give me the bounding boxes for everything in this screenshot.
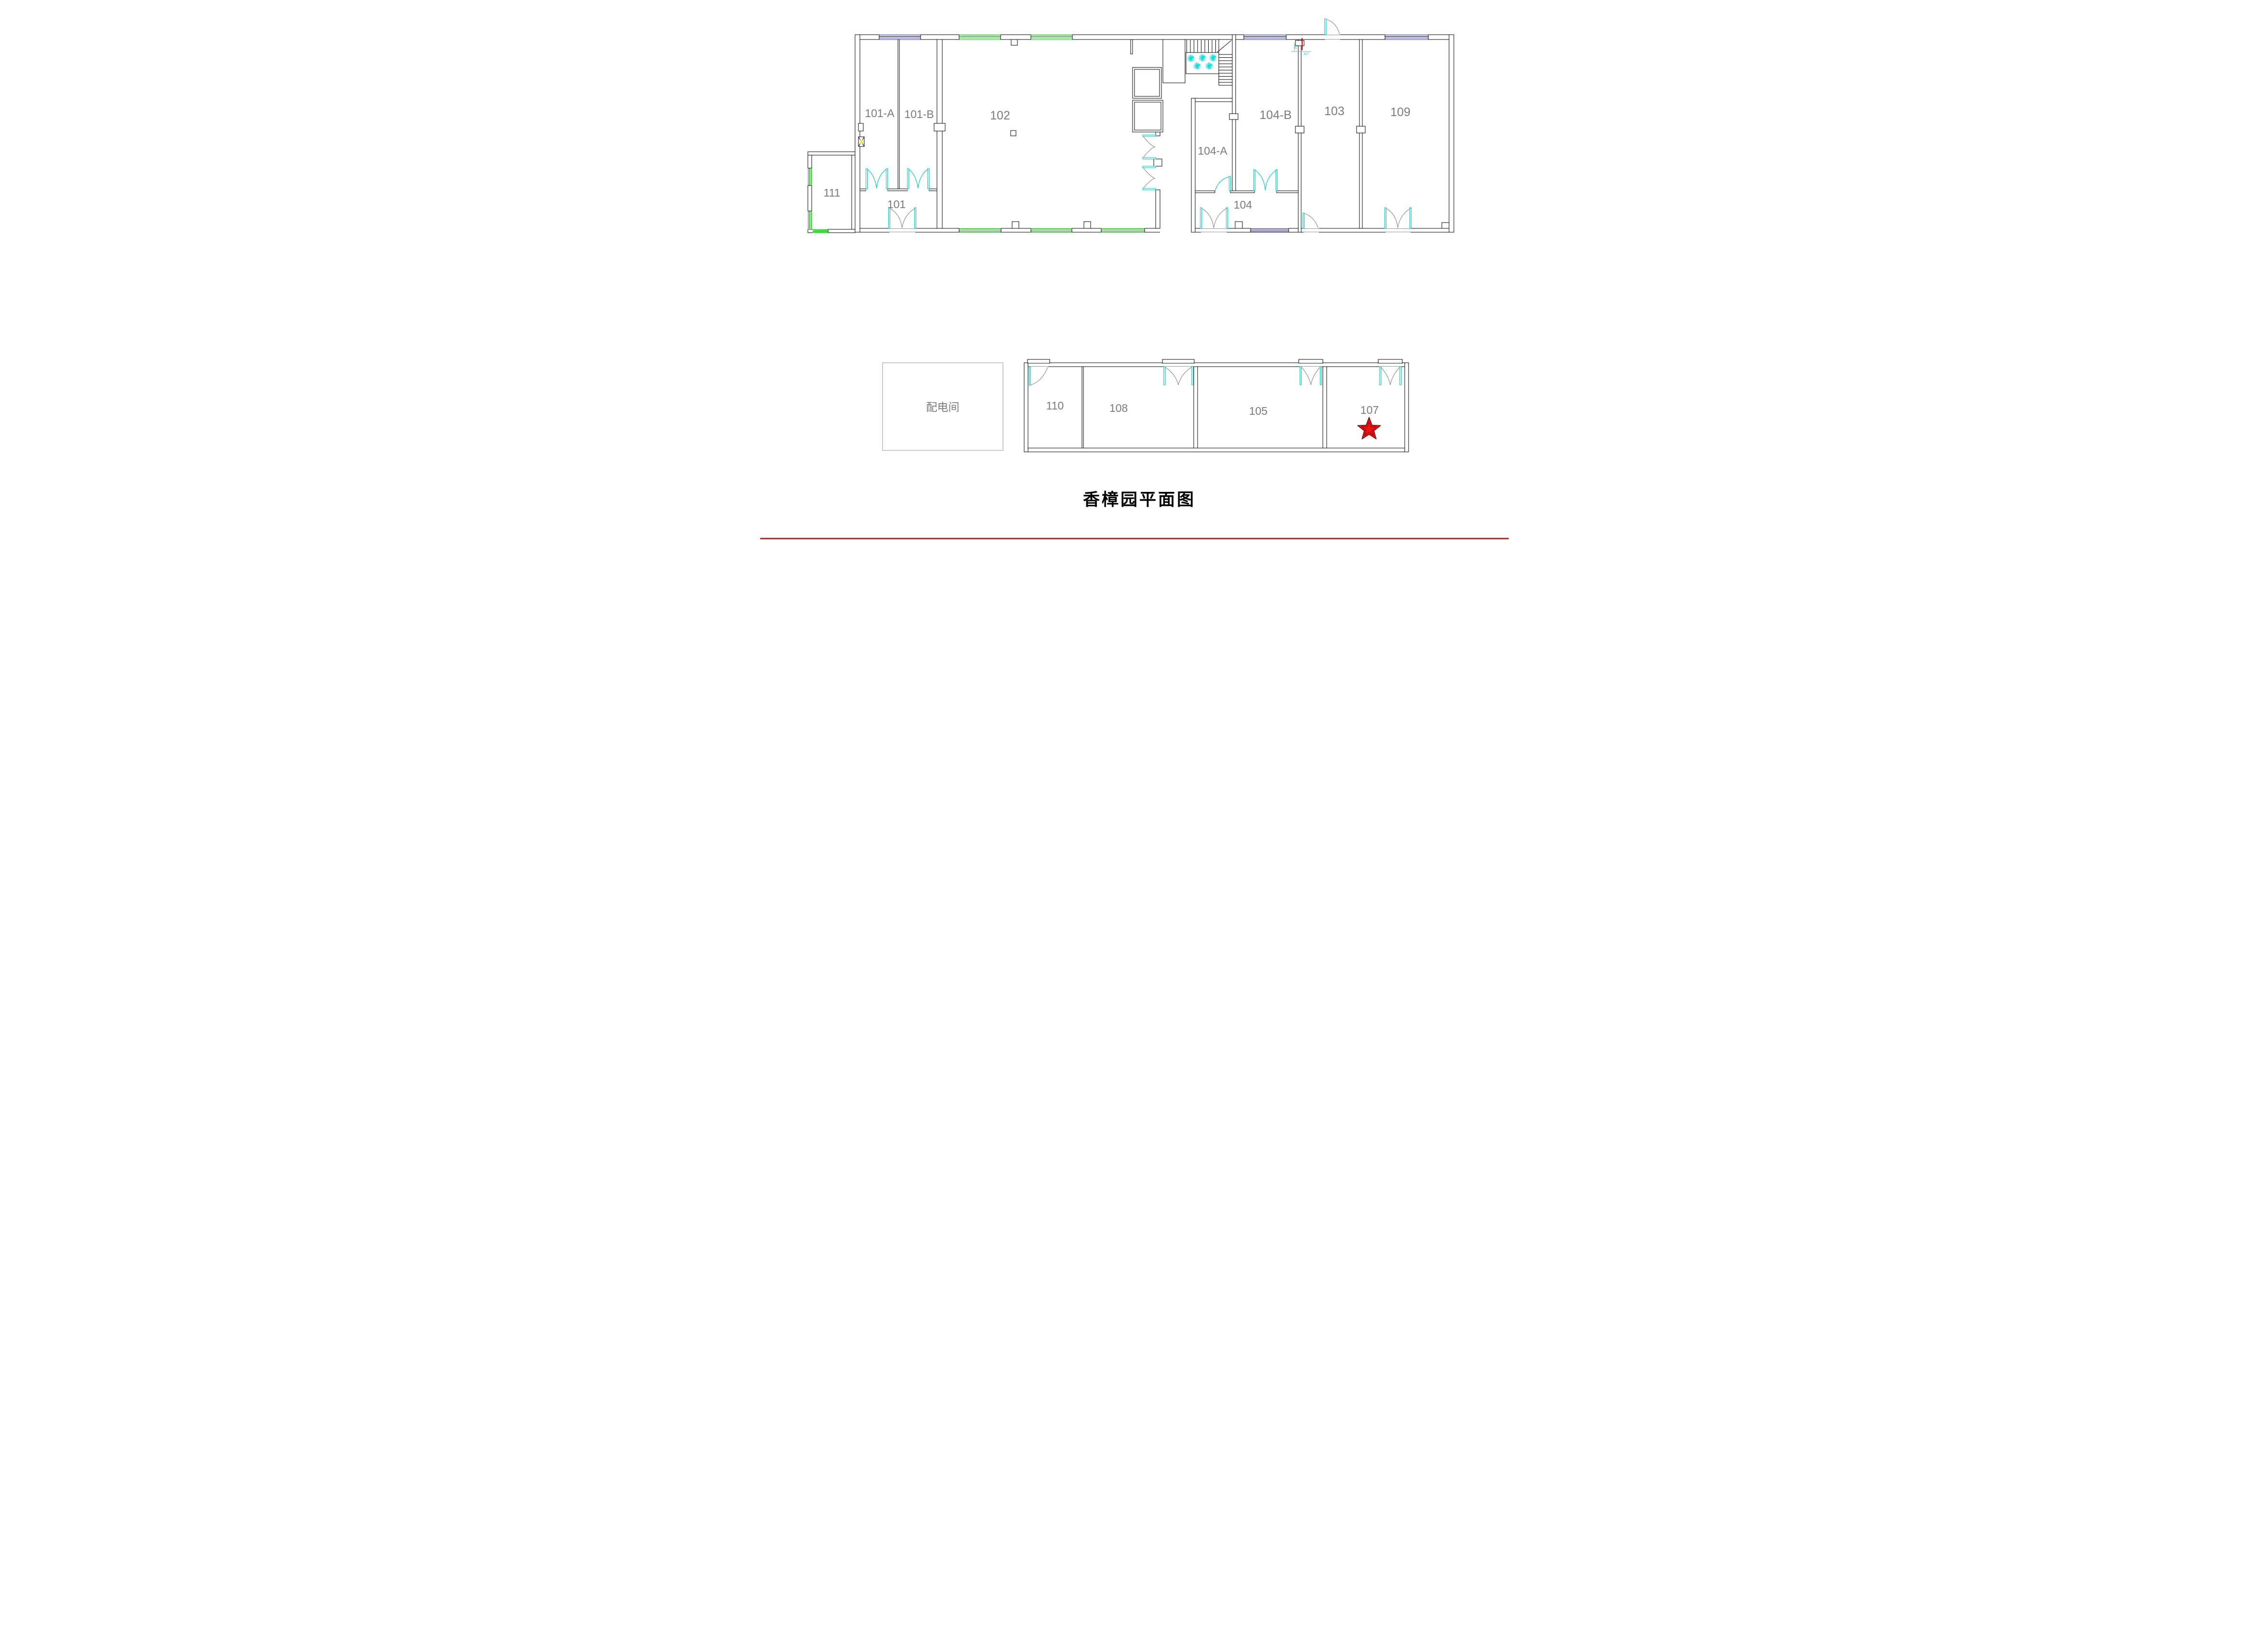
door-102-entrance-south — [1143, 166, 1156, 190]
window-green-111-left-1 — [807, 168, 812, 185]
wall-stub-102 — [1131, 40, 1133, 54]
planter-area — [1186, 53, 1219, 74]
room-label-101a: 101-A — [865, 107, 895, 119]
door-109-exterior — [1385, 208, 1411, 233]
annex-top-wall — [808, 152, 855, 155]
dim-label-h: 427 — [1304, 53, 1309, 56]
door-104b — [1253, 170, 1277, 191]
floor-plan-drawing: 266 427 101-A 101-B 102 101 104-A 104-B … — [756, 0, 1512, 542]
entrance-opening — [1160, 228, 1191, 233]
wall-108-105 — [1194, 367, 1198, 448]
plant-icon — [1206, 63, 1213, 69]
wall-102-east-a — [1156, 132, 1160, 136]
room-label-108: 108 — [1109, 402, 1127, 414]
main-top-wall — [855, 35, 1454, 40]
south-right-wall — [1405, 363, 1409, 452]
column-102-center — [1011, 131, 1016, 136]
pilaster-109-corner — [1442, 223, 1449, 228]
closet-1 — [1133, 67, 1161, 98]
shaft — [1163, 40, 1185, 83]
door-107 — [1379, 363, 1401, 385]
room-label-105: 105 — [1249, 405, 1267, 417]
pilaster-vestibule — [1154, 159, 1162, 166]
window-green-102-bottom-2 — [1031, 228, 1072, 233]
wall-101-lobby-c — [929, 189, 937, 191]
south-left-wall — [1024, 363, 1028, 452]
south-top-wall — [1024, 363, 1409, 367]
pilaster-104-lobby — [1235, 222, 1242, 228]
plant-icon — [1199, 54, 1206, 61]
plant-icon — [1194, 63, 1200, 69]
closet-2 — [1133, 100, 1163, 132]
door-top-exterior — [1324, 19, 1340, 40]
bottom-red-rule — [760, 538, 1509, 540]
window-blue-109-top — [1385, 34, 1428, 40]
room-label-102: 102 — [990, 109, 1010, 122]
wall-110-108 — [1082, 367, 1083, 448]
main-left-wall — [855, 35, 860, 232]
pilaster-101b-102 — [934, 123, 945, 131]
wall-104-lobby-a — [1195, 191, 1215, 193]
door-leaf — [1324, 19, 1326, 35]
door-102-entrance-north — [1143, 135, 1156, 159]
room-label-101: 101 — [887, 198, 905, 211]
main-bottom-wall — [855, 228, 1454, 232]
wall-105-107 — [1323, 367, 1327, 448]
pilaster-103-109 — [1357, 126, 1365, 133]
stairs — [1185, 40, 1232, 85]
window-green-111-bottom — [813, 229, 828, 233]
door-104-exterior — [1200, 208, 1227, 233]
column-marker-yellow — [858, 137, 864, 146]
room-label-109: 109 — [1390, 106, 1411, 119]
pilaster-104b-103-mid — [1295, 126, 1304, 133]
door-104a — [1215, 176, 1230, 191]
south-building: 110 108 105 107 — [1024, 359, 1409, 452]
door-103-exterior — [1303, 213, 1319, 233]
wall-101-lobby-b — [887, 189, 908, 191]
window-green-102-top-2 — [1031, 34, 1072, 40]
wall-101b-102 — [937, 40, 942, 228]
pilaster-left-wall — [858, 123, 863, 131]
pilaster-102-bottom-2 — [1084, 222, 1091, 228]
page-title: 香樟园平面图 — [1082, 490, 1195, 509]
window-blue-104b-top — [1244, 34, 1286, 40]
door-105 — [1300, 363, 1321, 385]
annex-111: 111 — [807, 152, 855, 233]
room-label-104: 104 — [1233, 198, 1252, 211]
power-room: 配电间 — [883, 363, 1003, 450]
door-swing-arc — [1326, 19, 1340, 35]
wall-104a-top — [1191, 98, 1232, 102]
room-label-104a: 104-A — [1198, 145, 1227, 157]
room-label-104b: 104-B — [1259, 108, 1292, 122]
window-blue-101 — [879, 34, 921, 40]
floor-plan-page: 266 427 101-A 101-B 102 101 104-A 104-B … — [756, 0, 1512, 542]
door-108 — [1163, 363, 1193, 385]
wall-104-lobby-b — [1230, 191, 1254, 193]
stair-break-line — [1217, 40, 1231, 52]
stair-bottom-wall — [1219, 82, 1232, 85]
room-label-107: 107 — [1360, 404, 1378, 416]
room-label-power: 配电间 — [926, 401, 959, 413]
wall-104-lobby-c — [1277, 191, 1298, 193]
room-label-110: 110 — [1046, 399, 1064, 412]
wall-102-east-b — [1156, 190, 1160, 228]
room-label-101b: 101-B — [904, 108, 934, 120]
lintel-105 — [1299, 359, 1323, 363]
wall-104b-103 — [1298, 40, 1301, 232]
window-green-102-top-1 — [959, 34, 1001, 40]
door-101b — [907, 169, 929, 191]
door-101a — [866, 169, 887, 191]
window-green-102-bottom-1 — [959, 228, 1001, 233]
pilaster-102-bottom-1 — [1012, 222, 1019, 228]
lintel-107 — [1378, 359, 1402, 363]
pilaster-102-top — [1011, 40, 1017, 45]
plant-icon — [1187, 55, 1194, 62]
door-110 — [1029, 363, 1048, 385]
room-label-103: 103 — [1324, 105, 1345, 118]
main-right-wall — [1449, 35, 1454, 232]
door-101-exterior — [888, 208, 916, 233]
wall-101a-101b — [898, 40, 899, 191]
window-green-102-bottom-3 — [1101, 228, 1145, 233]
dim-label-v: 266 — [1294, 44, 1297, 49]
main-building: 266 427 101-A 101-B 102 101 104-A 104-B … — [855, 19, 1454, 233]
room-label-111: 111 — [823, 186, 840, 199]
wall-103-109 — [1359, 40, 1362, 228]
wall-104-west — [1191, 98, 1195, 232]
plant-icon — [1210, 54, 1216, 61]
pilaster-104a-104b — [1229, 114, 1238, 119]
lintel-108 — [1162, 359, 1194, 363]
wall-104a-104b — [1232, 35, 1236, 191]
wall-101-lobby-a — [860, 189, 866, 191]
window-blue-104-bottom — [1251, 228, 1289, 233]
window-green-111-left-2 — [807, 211, 812, 229]
location-star-icon — [1358, 417, 1381, 439]
lintel-110 — [1028, 359, 1050, 363]
south-bottom-wall — [1024, 448, 1409, 452]
